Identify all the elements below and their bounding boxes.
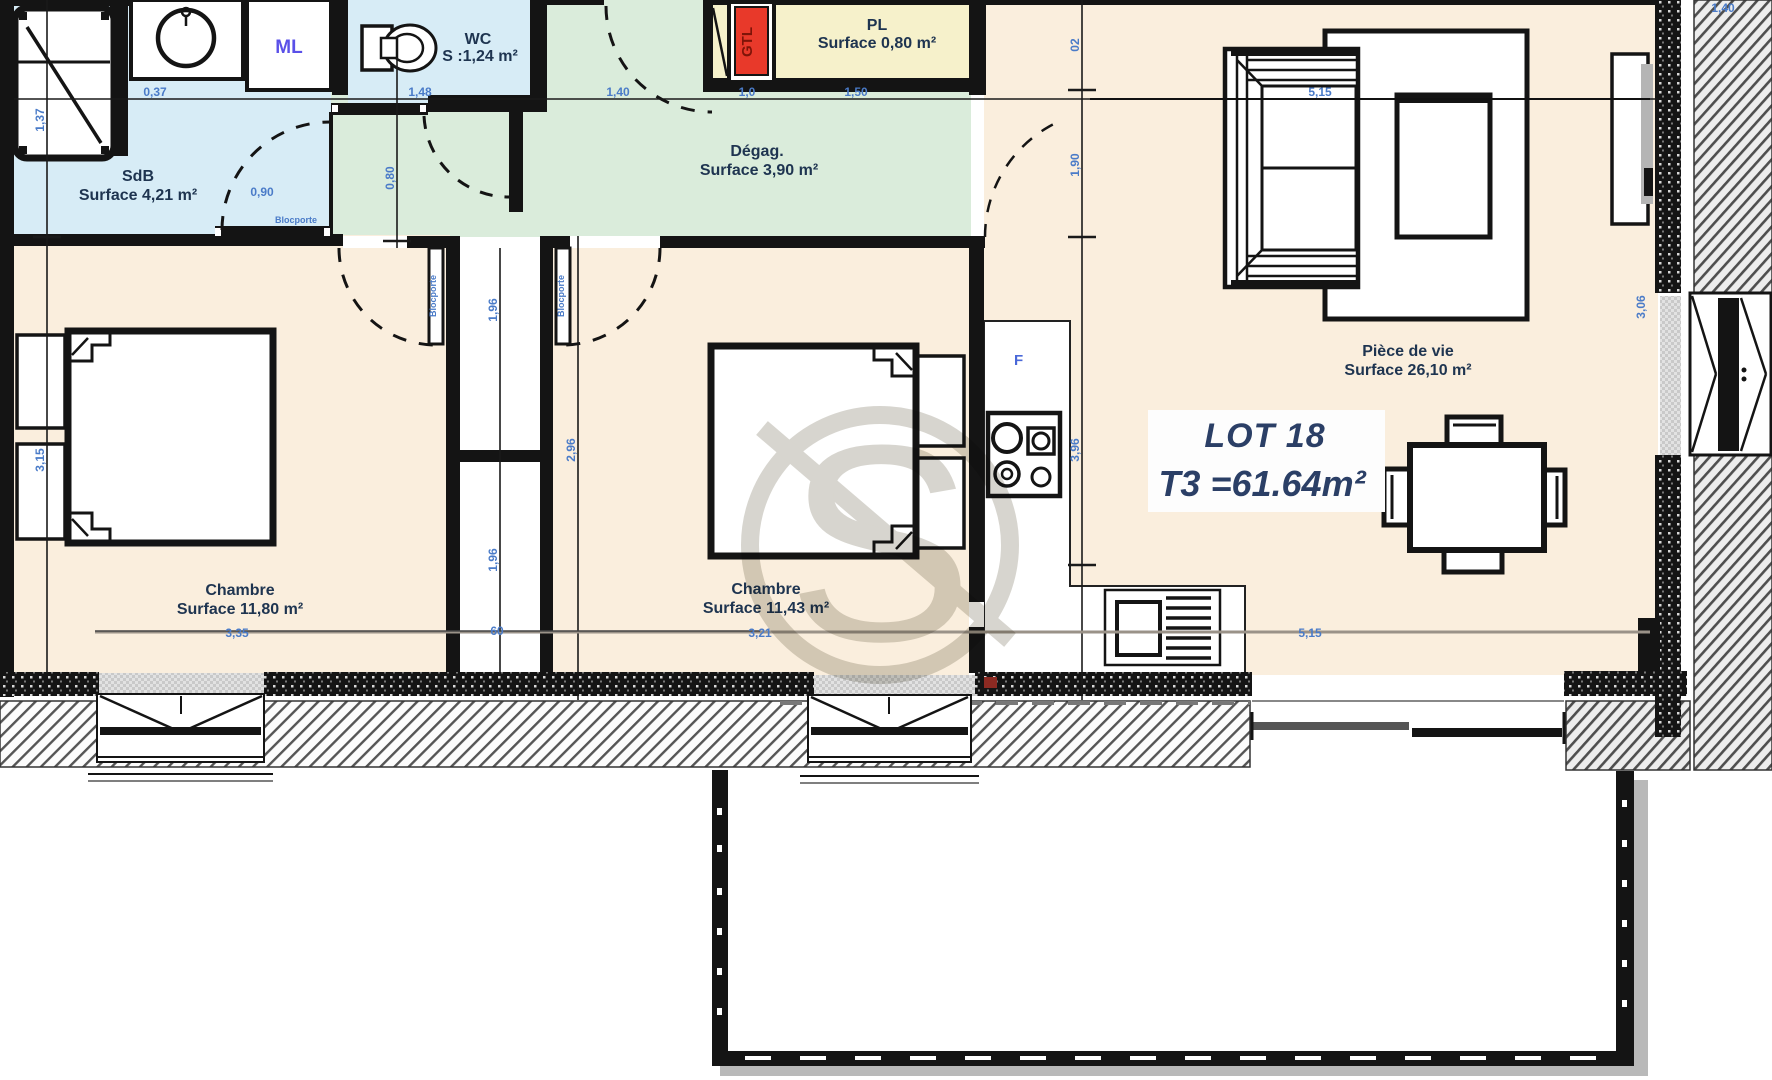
- svg-text:Dégag.: Dégag.: [730, 143, 783, 160]
- svg-text:S :1,24 m²: S :1,24 m²: [442, 48, 518, 65]
- svg-text:Surface 4,21 m²: Surface 4,21 m²: [79, 187, 197, 204]
- svg-text:3,21: 3,21: [748, 626, 772, 640]
- svg-text:1,40: 1,40: [606, 85, 630, 99]
- svg-text:Blocporte: Blocporte: [428, 275, 438, 317]
- svg-text:S: S: [787, 388, 974, 700]
- svg-text:1,90: 1,90: [1068, 153, 1082, 177]
- svg-text:1,96: 1,96: [486, 548, 500, 572]
- svg-text:Blocporte: Blocporte: [275, 215, 317, 225]
- svg-text:2,96: 2,96: [564, 438, 578, 462]
- svg-text:0,80: 0,80: [383, 166, 397, 190]
- svg-text:0,90: 0,90: [250, 185, 274, 199]
- svg-text:F: F: [1014, 352, 1023, 369]
- svg-text:GTL: GTL: [739, 27, 756, 57]
- svg-text:Blocporte: Blocporte: [556, 275, 566, 317]
- svg-text:5,15: 5,15: [1308, 85, 1332, 99]
- svg-text:3,06: 3,06: [1634, 295, 1648, 319]
- svg-text:5,15: 5,15: [1298, 626, 1322, 640]
- svg-text:Pièce de vie: Pièce de vie: [1362, 343, 1454, 360]
- svg-text:Chambre: Chambre: [205, 582, 274, 599]
- svg-text:T3 =61.64m²: T3 =61.64m²: [1158, 463, 1366, 504]
- svg-text:60: 60: [490, 624, 504, 638]
- svg-text:1,0: 1,0: [739, 85, 756, 99]
- svg-text:WC: WC: [465, 31, 492, 48]
- svg-text:1,50: 1,50: [844, 85, 868, 99]
- svg-text:0,37: 0,37: [143, 85, 167, 99]
- svg-text:Surface 11,80 m²: Surface 11,80 m²: [177, 601, 303, 618]
- svg-text:3,96: 3,96: [1068, 438, 1082, 462]
- svg-text:3,15: 3,15: [33, 448, 47, 472]
- svg-text:ML: ML: [275, 37, 303, 58]
- svg-text:3,35: 3,35: [225, 626, 249, 640]
- svg-text:02: 02: [1068, 38, 1082, 52]
- svg-text:1,37: 1,37: [33, 108, 47, 132]
- svg-text:Surface 3,90 m²: Surface 3,90 m²: [700, 162, 818, 179]
- svg-text:LOT 18: LOT 18: [1204, 417, 1325, 455]
- svg-text:Surface 26,10 m²: Surface 26,10 m²: [1344, 362, 1471, 379]
- svg-text:1,40: 1,40: [1711, 1, 1735, 15]
- svg-text:1,96: 1,96: [486, 298, 500, 322]
- svg-text:PL: PL: [867, 17, 888, 34]
- svg-text:1,48: 1,48: [408, 85, 432, 99]
- svg-text:Surface 0,80 m²: Surface 0,80 m²: [818, 35, 936, 52]
- svg-text:SdB: SdB: [122, 168, 154, 185]
